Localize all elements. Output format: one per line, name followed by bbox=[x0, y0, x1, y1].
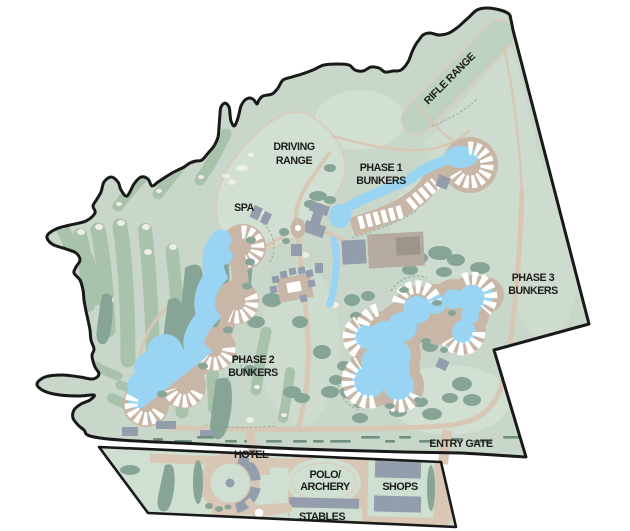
svg-text:BUNKERS: BUNKERS bbox=[228, 367, 278, 379]
svg-text:PHASE 2: PHASE 2 bbox=[232, 354, 275, 366]
svg-text:ARCHERY: ARCHERY bbox=[300, 481, 351, 493]
svg-text:ENTRY GATE: ENTRY GATE bbox=[429, 438, 492, 450]
svg-text:STABLES: STABLES bbox=[299, 511, 345, 523]
svg-text:HOTEL: HOTEL bbox=[234, 449, 269, 461]
svg-text:DRIVING: DRIVING bbox=[273, 141, 315, 153]
svg-text:SPA: SPA bbox=[234, 202, 255, 214]
svg-text:BUNKERS: BUNKERS bbox=[356, 175, 406, 187]
svg-text:POLO/: POLO/ bbox=[309, 469, 341, 481]
svg-text:BUNKERS: BUNKERS bbox=[508, 285, 558, 297]
svg-text:RANGE: RANGE bbox=[276, 155, 313, 167]
svg-text:PHASE 3: PHASE 3 bbox=[512, 272, 555, 284]
svg-text:PHASE 1: PHASE 1 bbox=[360, 162, 403, 174]
svg-text:SHOPS: SHOPS bbox=[382, 481, 418, 493]
